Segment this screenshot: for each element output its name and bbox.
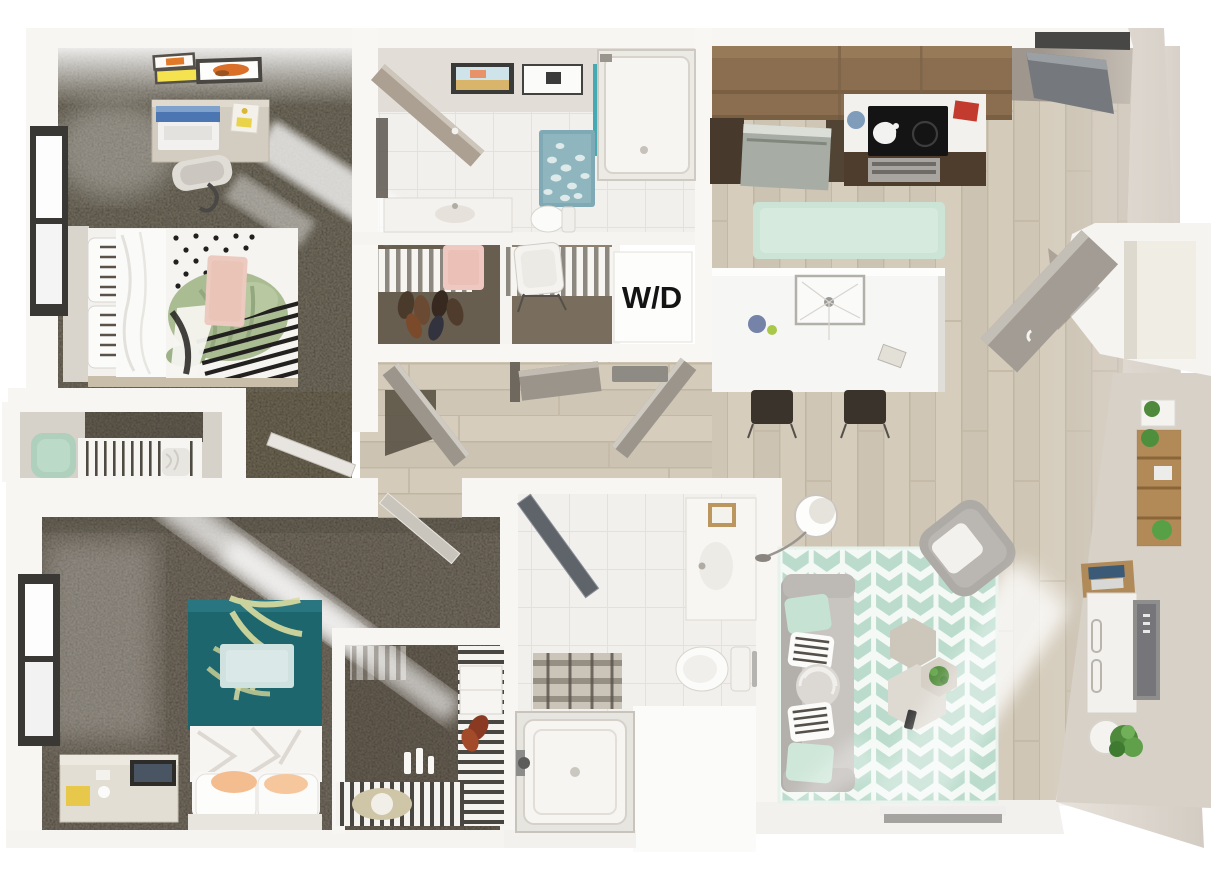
svg-text:W/D: W/D [622,280,682,315]
